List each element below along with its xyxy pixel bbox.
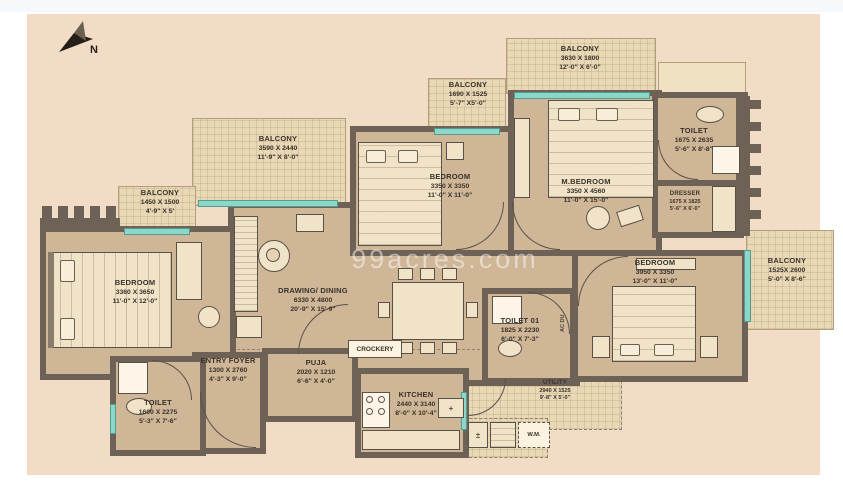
top-border: [0, 0, 843, 12]
sofa-seat-icon: [236, 316, 262, 338]
headboard: [48, 252, 54, 348]
parapet-tooth: [90, 206, 100, 218]
stool-icon: [198, 306, 220, 328]
ac-duct-label: AC DU: [560, 298, 566, 332]
label-bedroom-left: BEDROOM 3360 X 3650 11'-0" X 12'-0": [85, 278, 185, 307]
dining-table-icon: [392, 282, 464, 340]
label-drawing-dining: DRAWING/ DINING 6330 X 4800 20'-9" X 15'…: [248, 286, 378, 315]
parapet-tooth: [750, 100, 761, 109]
parapet-tooth: [750, 122, 761, 131]
label-balcony-top-left: BALCONY 3590 X 2440 11'-9" X 8'-0": [228, 134, 328, 163]
window: [434, 128, 500, 135]
parapet-tooth: [750, 166, 761, 175]
pillow: [596, 108, 618, 121]
nightstand-icon: [446, 142, 464, 160]
label-toilet-01: TOILET 01 1825 X 2230 6'-0" X 7'-3": [475, 316, 565, 345]
pillow: [654, 344, 674, 356]
chair-icon: [586, 206, 610, 230]
crockery-box: CROCKERY: [348, 340, 402, 358]
label-kitchen: KITCHEN 2440 X 3140 8'-0" X 10'-4": [370, 390, 462, 419]
crockery-label: CROCKERY: [357, 346, 394, 353]
pillow: [558, 108, 580, 121]
label-utility: UTILITY 2940 X 1525 9'-8" X 5'-0": [515, 380, 595, 403]
label-balcony-left: BALCONY 1450 X 1500 4'-9" X 5': [115, 188, 205, 217]
label-balcony-top-right: BALCONY 3630 X 1800 12'-0" X 6'-0": [530, 44, 630, 73]
nightstand-icon: [592, 336, 610, 358]
window: [198, 200, 338, 207]
compass-n-label: N: [90, 44, 98, 56]
parapet-tooth: [750, 144, 761, 153]
parapet-tooth: [750, 210, 761, 219]
pillow: [60, 260, 75, 282]
washing-machine-box: W.M.: [518, 422, 550, 448]
label-toilet-bottom-left: TOILET 1600 X 2275 5'-3" X 7'-6": [113, 398, 203, 427]
armchair-icon: [296, 214, 324, 232]
label-dresser: DRESSER 1675 X 1825 5'-6" X 6'-0": [646, 191, 724, 214]
geyser-icon: ±: [468, 422, 488, 448]
parapet-tooth: [42, 206, 52, 218]
pillow: [366, 150, 386, 163]
chair-icon: [378, 302, 390, 318]
watermark: 99acres.com: [300, 244, 590, 275]
nightstand-icon: [700, 336, 718, 358]
wc-icon: [696, 106, 724, 123]
parapet-tooth: [750, 188, 761, 197]
window: [514, 92, 650, 99]
label-bedroom-top-middle: BEDROOM 3350 X 3350 11'-0" X 11'-0": [400, 172, 500, 201]
pillow: [398, 150, 418, 163]
parapet-left: [40, 218, 120, 232]
pillow: [620, 344, 640, 356]
label-balcony-top-middle: BALCONY 1690 X 1525 5'-7" X5'-0": [423, 80, 513, 109]
label-toilet-top-right: TOILET 1675 X 2635 5'-6" X 8'-8": [649, 126, 739, 155]
dishwasher-icon: [490, 422, 516, 448]
window: [124, 228, 190, 235]
label-balcony-right: BALCONY 1525X 2600 5'-0" X 8'-6": [741, 256, 833, 285]
label-puja: PUJA 2020 X 1210 6'-6" X 4'-0": [276, 358, 356, 387]
plant-icon: [266, 248, 280, 262]
label-bedroom-right: BEDROOM 3950 X 3350 13'-0" X 11'-0": [605, 258, 705, 287]
washing-machine-label: W.M.: [527, 432, 540, 438]
chair-icon: [442, 342, 457, 354]
parapet-tooth: [74, 206, 84, 218]
label-entry-foyer: ENTRY FOYER 1300 X 2760 4'-3" X 9'-0": [199, 356, 257, 385]
shower-icon: [118, 362, 148, 394]
wardrobe-icon: [514, 118, 530, 198]
label-master-bedroom: M.BEDROOM 3350 X 4560 11'-0" X 15'-0": [536, 177, 636, 206]
pillow: [60, 318, 75, 340]
chair-icon: [420, 342, 435, 354]
floor-plan: N: [0, 0, 843, 489]
parapet-tooth: [58, 206, 68, 218]
kitchen-counter-icon: [362, 430, 460, 450]
